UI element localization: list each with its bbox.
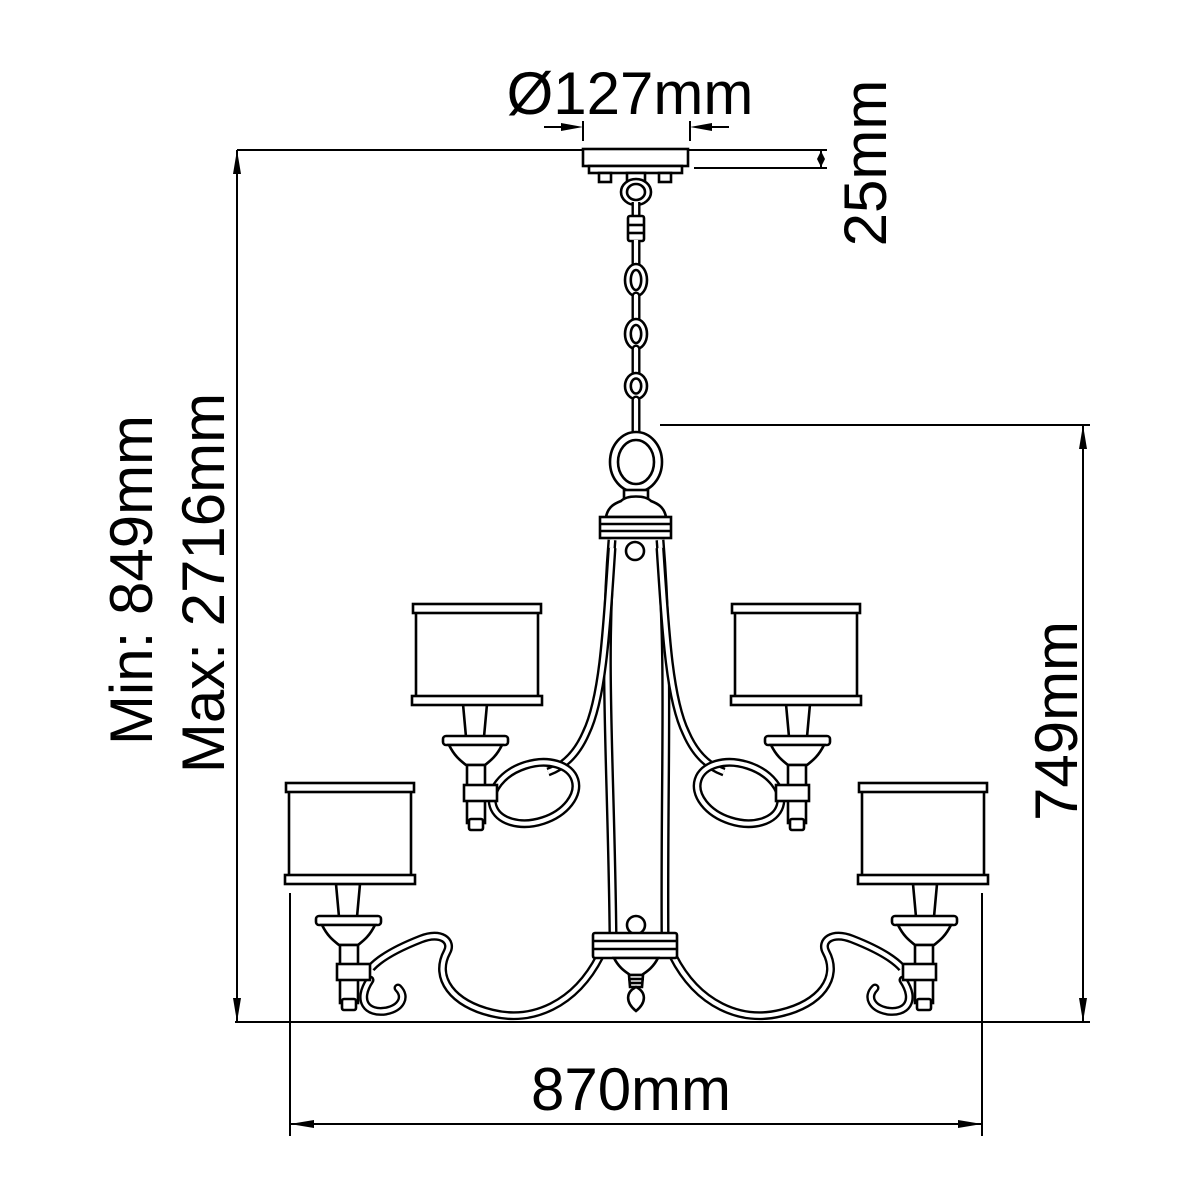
drawing-page: Ø127mm 25mm Min: 849mm Max: 2716mm 749mm… bbox=[0, 0, 1200, 1200]
shade-bottom-band bbox=[858, 875, 988, 884]
upper-right-light bbox=[731, 604, 861, 830]
chandelier-dimension-diagram: Ø127mm 25mm Min: 849mm Max: 2716mm 749mm… bbox=[0, 0, 1200, 1200]
label-canopy-diameter: Ø127mm bbox=[507, 60, 754, 127]
lower-right-light bbox=[858, 783, 988, 1010]
shade-body bbox=[735, 611, 857, 698]
hanging-chain bbox=[625, 202, 647, 432]
upper-left-light bbox=[412, 604, 542, 830]
shade-body bbox=[416, 611, 538, 698]
lower-arm-left bbox=[364, 936, 600, 1016]
label-min-height: Min: 849mm bbox=[98, 415, 165, 745]
dimension-canopy-thickness bbox=[694, 150, 827, 168]
bottom-finial bbox=[628, 987, 644, 1011]
shade-body bbox=[862, 790, 984, 877]
shade-top-band bbox=[413, 604, 541, 613]
ceiling-canopy bbox=[583, 149, 688, 205]
label-canopy-thickness: 25mm bbox=[832, 80, 899, 247]
shade-top-band bbox=[859, 783, 987, 792]
label-width: 870mm bbox=[531, 1056, 731, 1123]
lower-left-light bbox=[285, 783, 415, 1010]
lower-arm-right bbox=[673, 936, 909, 1016]
shade-top-band bbox=[286, 783, 414, 792]
center-column bbox=[607, 540, 666, 934]
shade-bottom-band bbox=[412, 696, 542, 705]
shade-bottom-band bbox=[731, 696, 861, 705]
shade-top-band bbox=[732, 604, 860, 613]
label-max-height: Max: 2716mm bbox=[170, 393, 237, 773]
shade-body bbox=[289, 790, 411, 877]
label-body-height: 749mm bbox=[1023, 621, 1090, 821]
decorative-ring bbox=[610, 432, 662, 492]
shade-bottom-band bbox=[285, 875, 415, 884]
